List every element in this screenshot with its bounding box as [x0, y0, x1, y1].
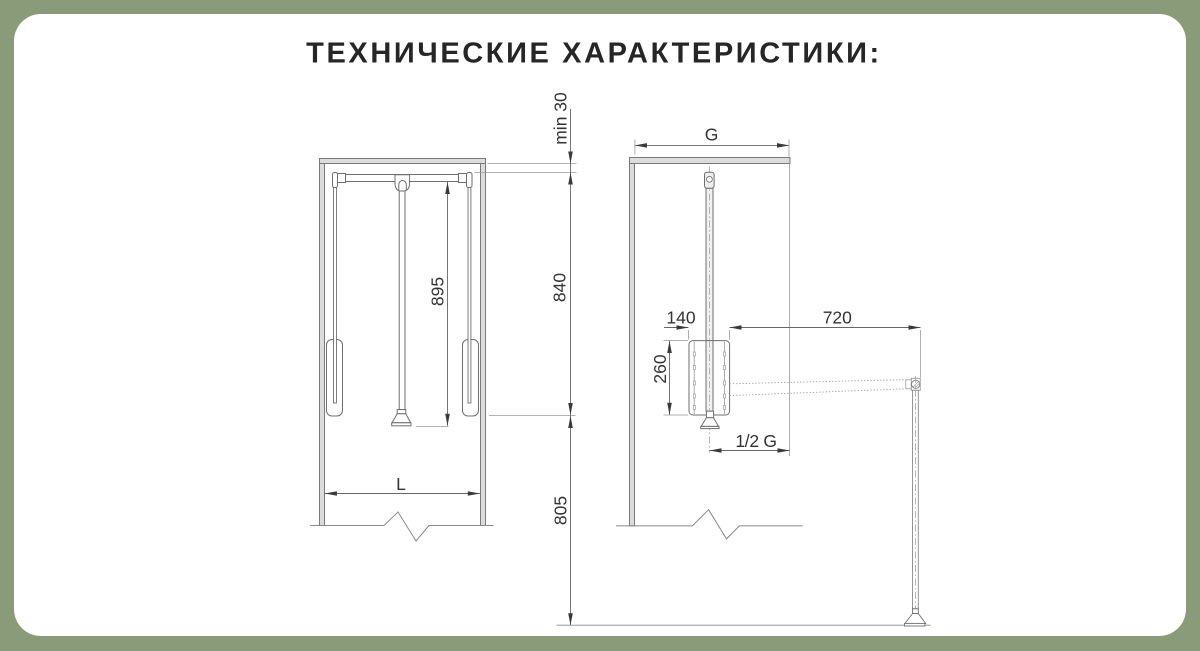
svg-text:1/2 G: 1/2 G: [735, 431, 776, 451]
svg-text:G: G: [705, 125, 719, 145]
svg-text:140: 140: [666, 308, 695, 328]
svg-text:ТЕХНИЧЕСКИЕ ХАРАКТЕРИСТИКИ:: ТЕХНИЧЕСКИЕ ХАРАКТЕРИСТИКИ:: [306, 37, 882, 69]
svg-text:L: L: [396, 474, 406, 494]
svg-text:min 30: min 30: [551, 92, 571, 145]
svg-text:720: 720: [823, 308, 852, 328]
svg-text:840: 840: [550, 273, 570, 302]
svg-text:805: 805: [551, 496, 571, 525]
svg-text:895: 895: [428, 277, 448, 306]
svg-text:260: 260: [650, 354, 670, 383]
